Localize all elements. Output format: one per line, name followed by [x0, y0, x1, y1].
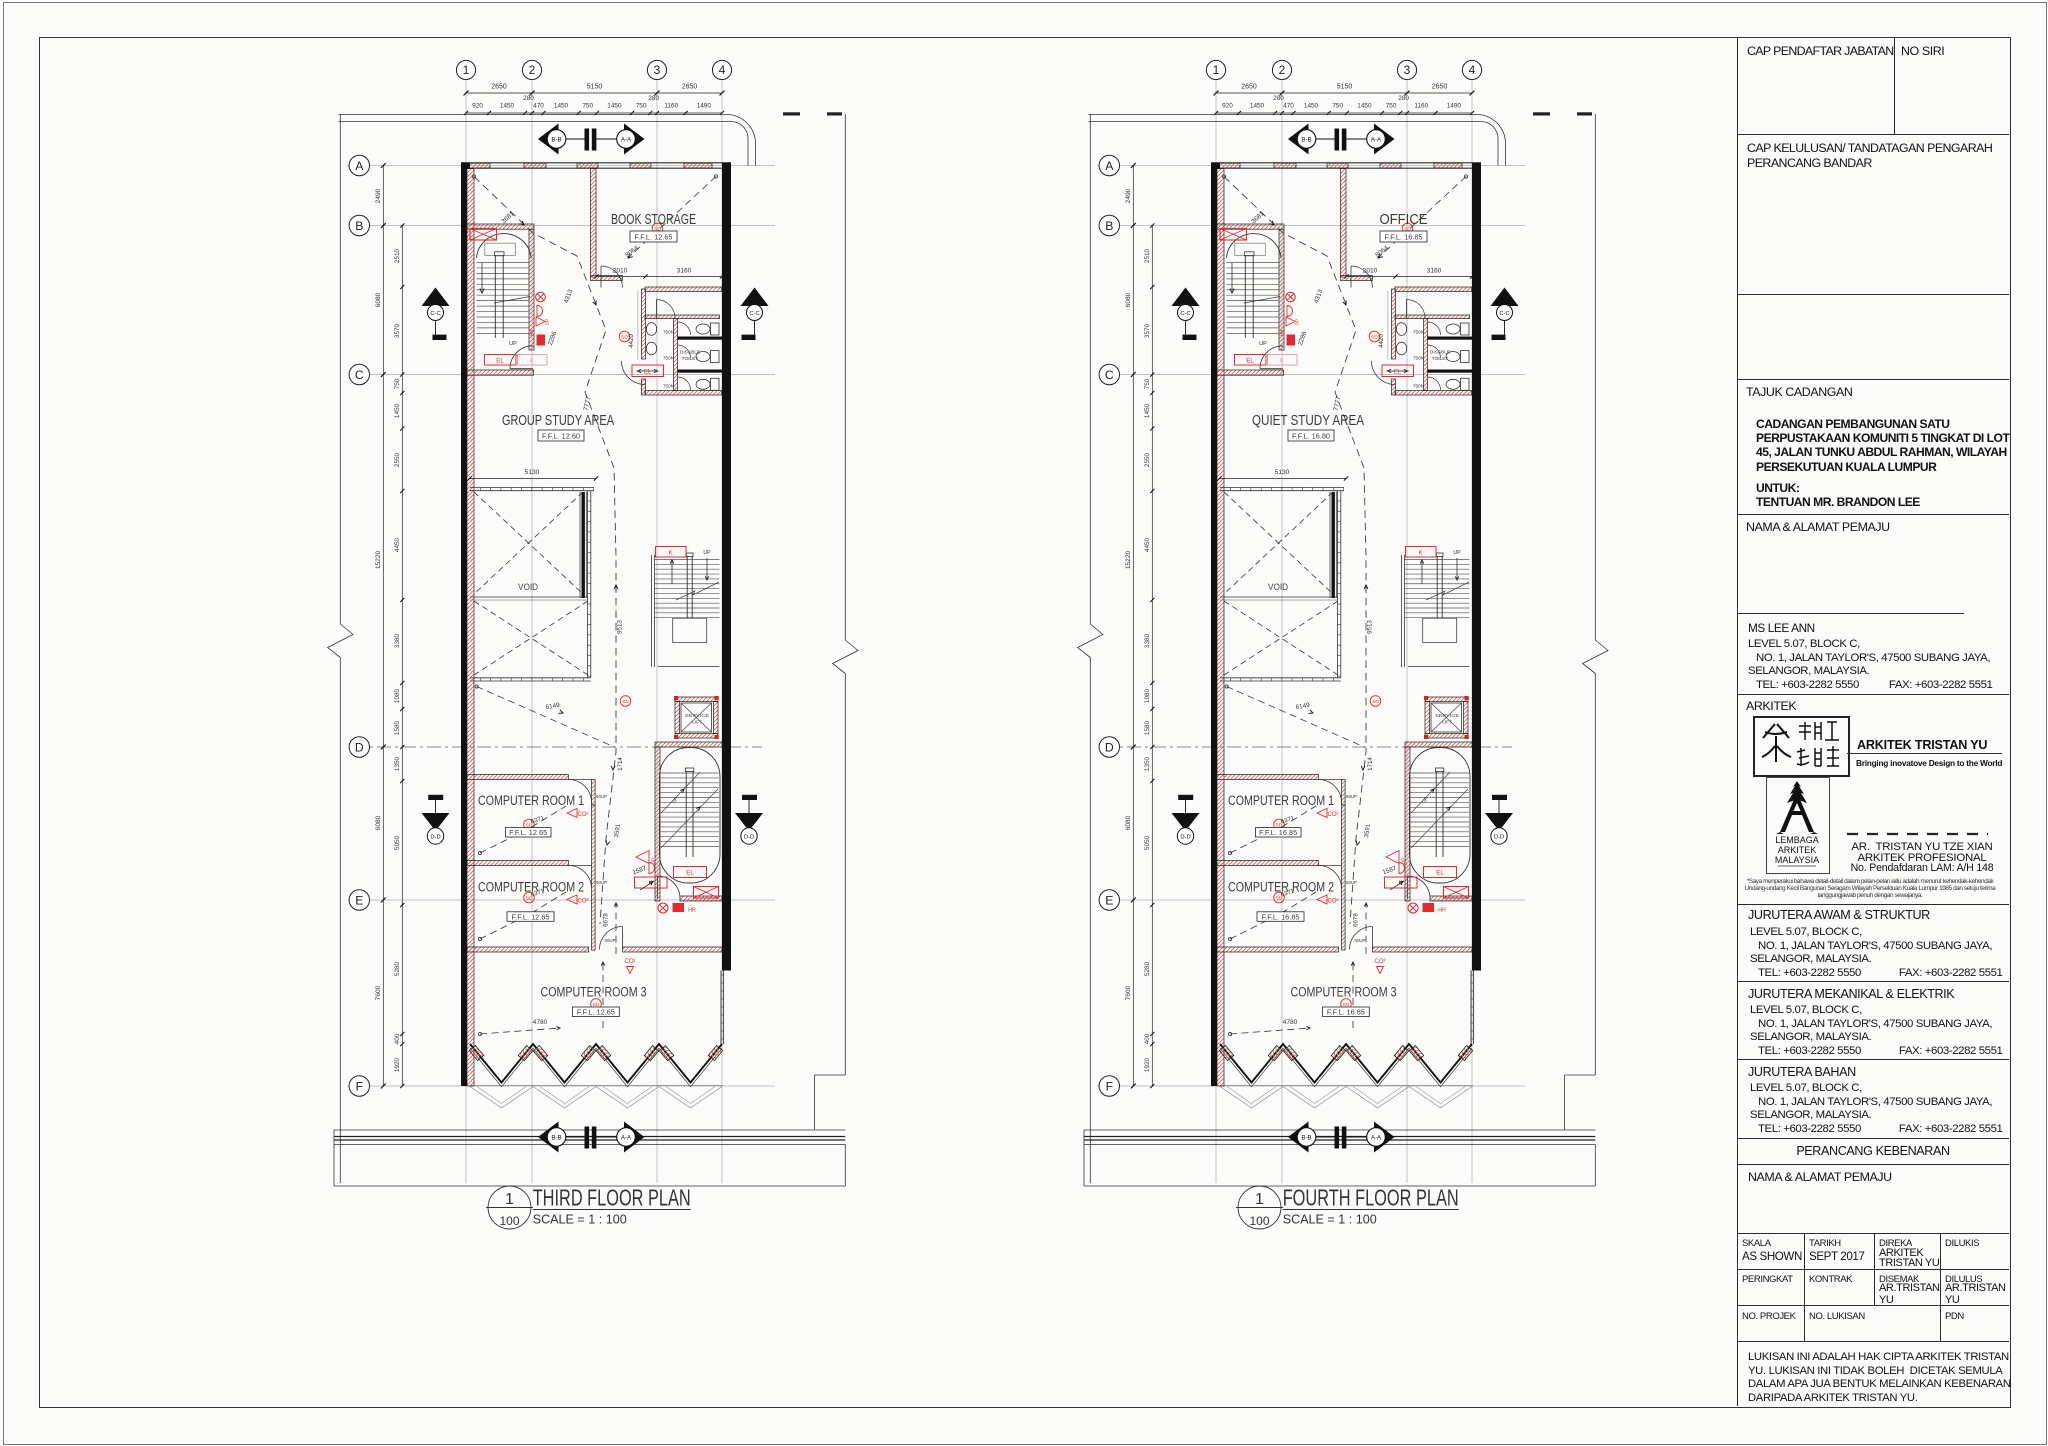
svg-text:F.F.L. 12.65: F.F.L. 12.65 — [512, 914, 550, 921]
svg-text:BOOK STORAGE: BOOK STORAGE — [611, 211, 696, 228]
svg-text:F.F.L. 16.80: F.F.L. 16.80 — [1292, 431, 1330, 440]
svg-text:1: 1 — [1255, 1191, 1264, 1208]
svg-text:1: 1 — [505, 1191, 514, 1208]
svg-text:QUIET STUDY AREA: QUIET STUDY AREA — [1252, 412, 1364, 429]
svg-text:F.F.L. 16.85: F.F.L. 16.85 — [1262, 914, 1300, 921]
svg-text:COMPUTER ROOM 3: COMPUTER ROOM 3 — [541, 985, 647, 1000]
svg-text:F.F.L. 12.60: F.F.L. 12.60 — [542, 431, 580, 440]
svg-text:F.F.L. 16.85: F.F.L. 16.85 — [1327, 1010, 1365, 1017]
svg-text:F.F.L. 12.65: F.F.L. 12.65 — [509, 830, 547, 837]
svg-text:GROUP STUDY AREA: GROUP STUDY AREA — [502, 412, 614, 429]
svg-text:SCALE = 1 : 100: SCALE = 1 : 100 — [1283, 1213, 1377, 1227]
svg-text:F.F.L. 16.85: F.F.L. 16.85 — [1259, 830, 1297, 837]
svg-text:COMPUTER ROOM 2: COMPUTER ROOM 2 — [1228, 880, 1334, 895]
svg-text:F.F.L. 16.85: F.F.L. 16.85 — [1385, 233, 1423, 242]
svg-text:COMPUTER ROOM 1: COMPUTER ROOM 1 — [478, 793, 584, 808]
svg-text:FOURTH FLOOR PLAN: FOURTH FLOOR PLAN — [1283, 1185, 1459, 1211]
svg-text:COMPUTER ROOM 2: COMPUTER ROOM 2 — [478, 880, 584, 895]
svg-text:100: 100 — [1249, 1214, 1269, 1228]
svg-text:COMPUTER ROOM 3: COMPUTER ROOM 3 — [1291, 985, 1397, 1000]
svg-text:SCALE = 1 : 100: SCALE = 1 : 100 — [533, 1213, 627, 1227]
svg-text:OFFICE: OFFICE — [1380, 211, 1428, 228]
svg-text:COMPUTER ROOM 1: COMPUTER ROOM 1 — [1228, 793, 1334, 808]
svg-text:F.F.L. 12.65: F.F.L. 12.65 — [635, 233, 673, 242]
svg-text:100: 100 — [499, 1214, 519, 1228]
svg-text:F.F.L. 12.65: F.F.L. 12.65 — [577, 1010, 615, 1017]
svg-text:THIRD FLOOR PLAN: THIRD FLOOR PLAN — [533, 1185, 691, 1211]
